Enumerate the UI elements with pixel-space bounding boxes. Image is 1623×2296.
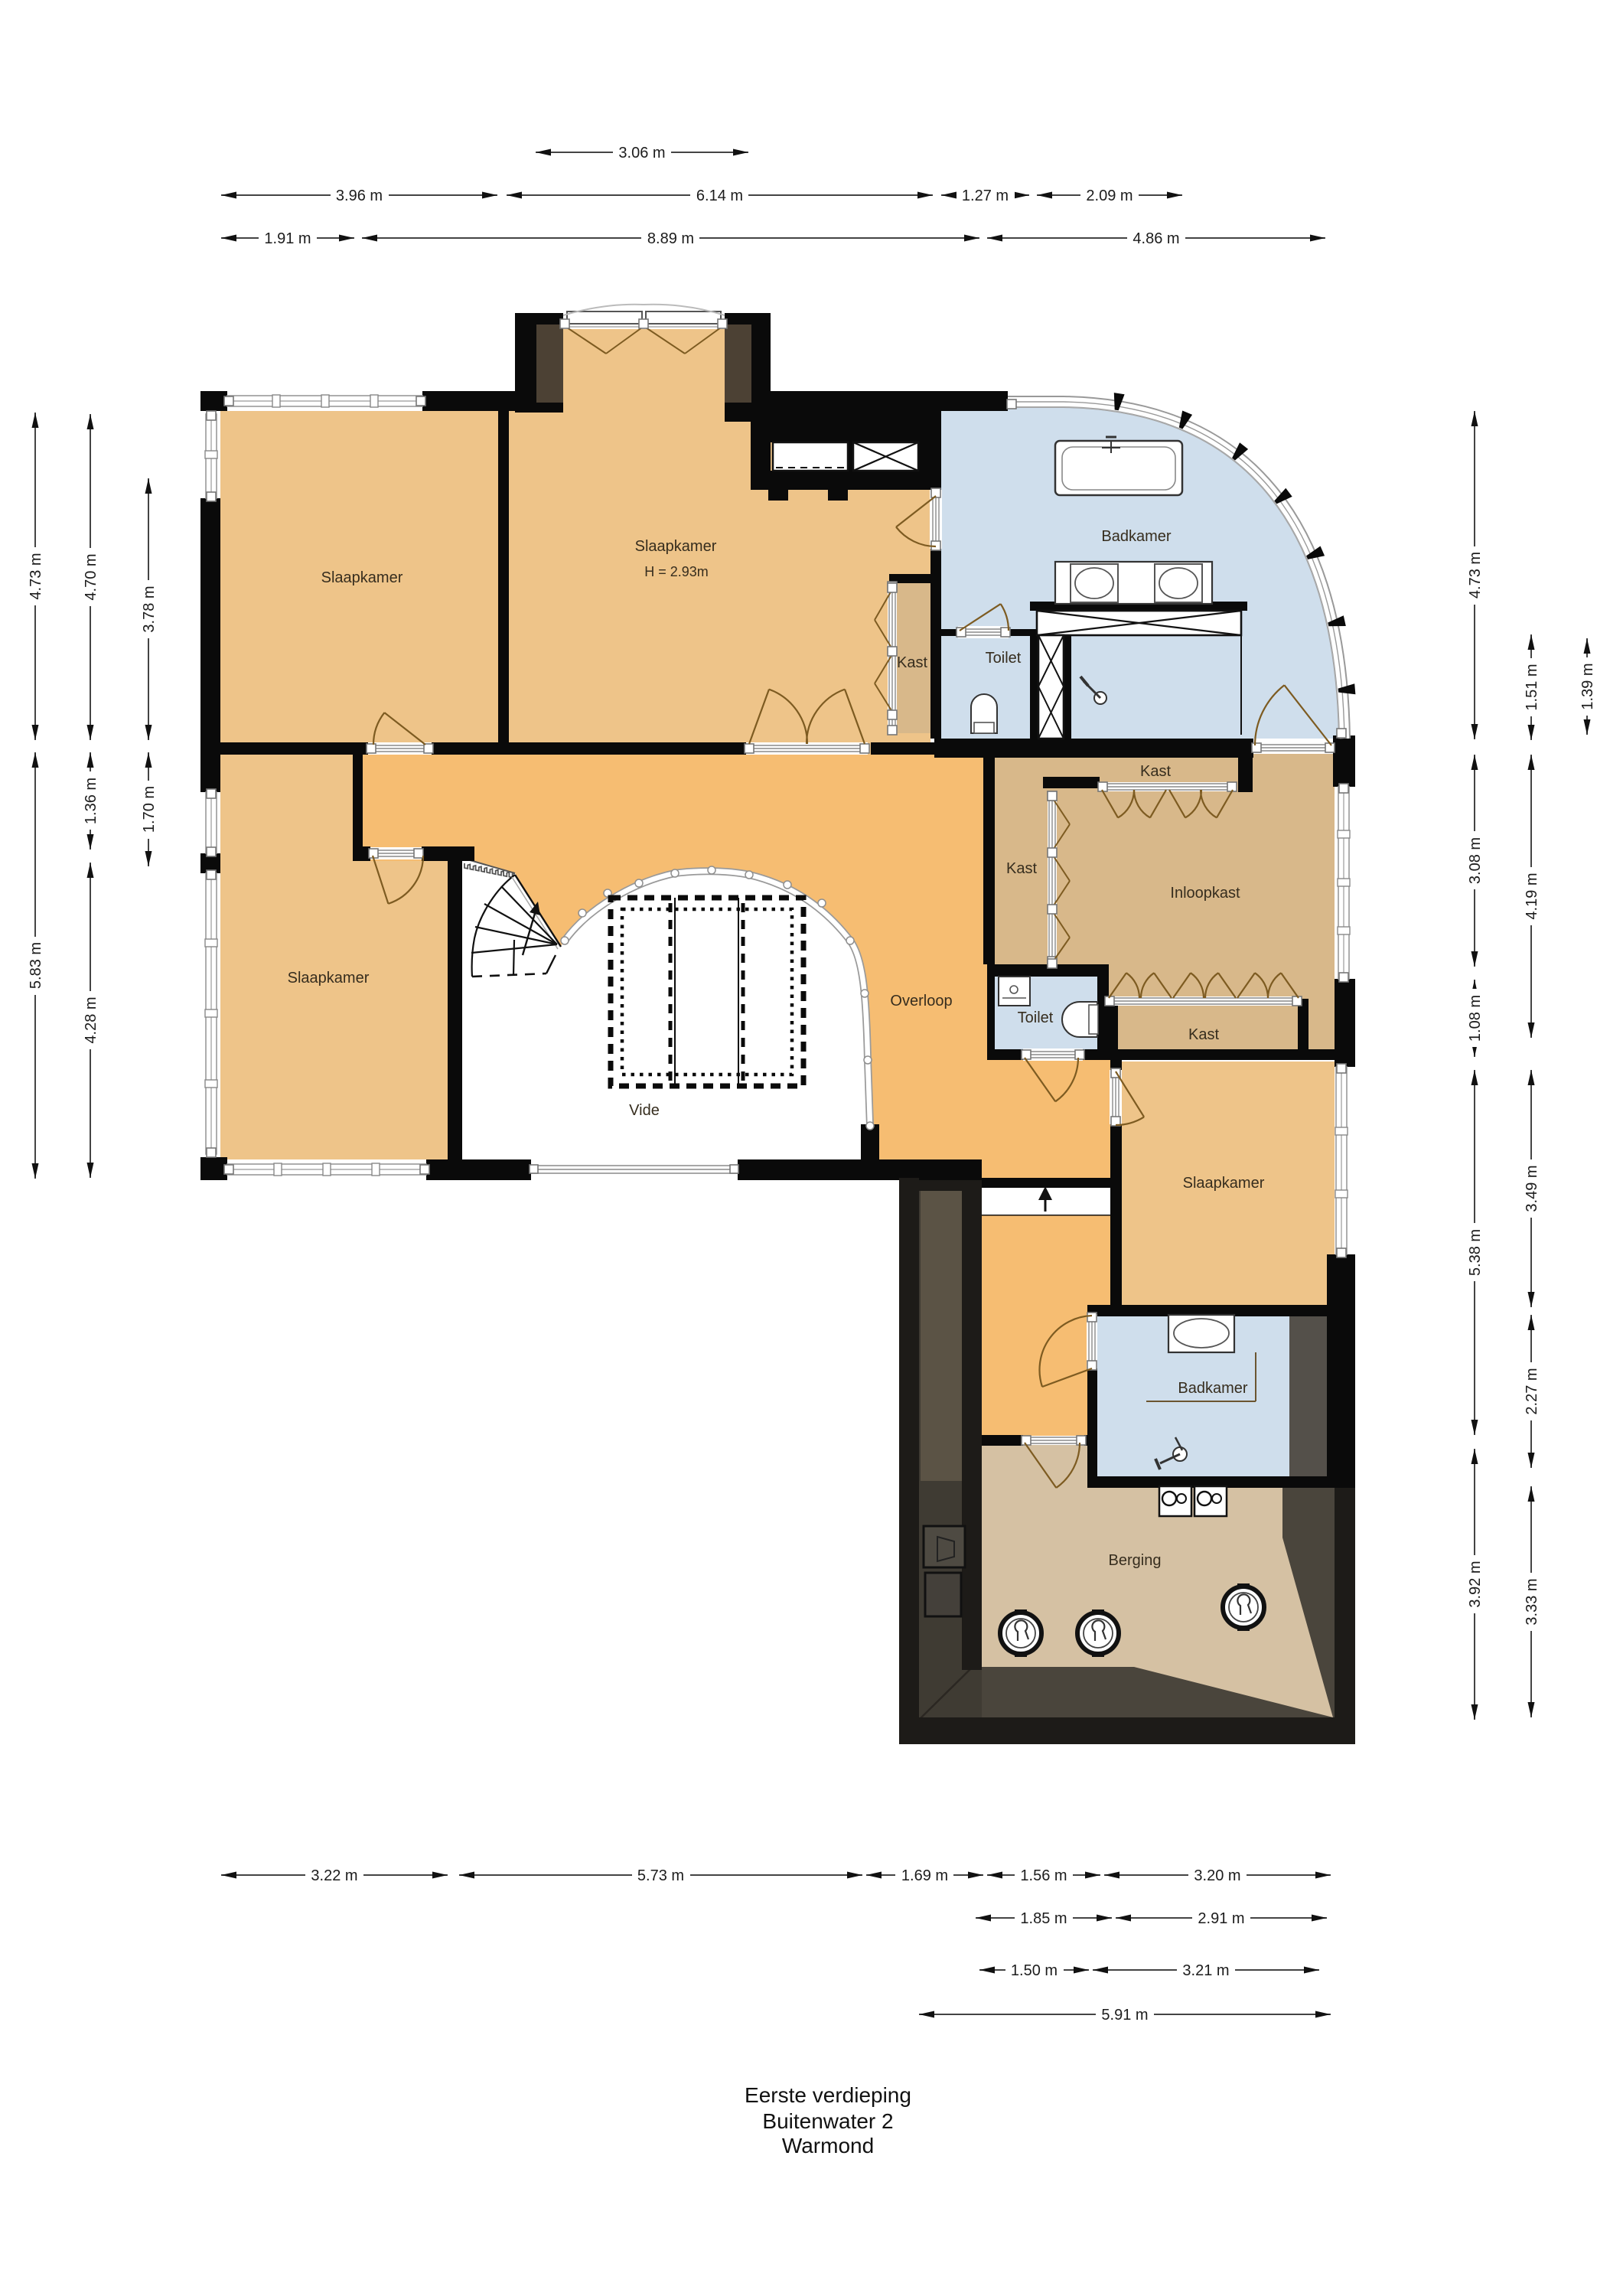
svg-text:4.73 m: 4.73 m [28,553,44,599]
svg-text:3.92 m: 3.92 m [1467,1561,1484,1607]
svg-text:Badkamer: Badkamer [1101,528,1171,545]
svg-text:Kast: Kast [1006,860,1037,877]
svg-text:Warmond: Warmond [782,2134,874,2157]
svg-text:1.39 m: 1.39 m [1579,663,1596,709]
svg-text:1.27 m: 1.27 m [962,188,1009,204]
svg-text:Berging: Berging [1109,1552,1162,1569]
svg-text:6.14 m: 6.14 m [696,188,743,204]
svg-text:1.51 m: 1.51 m [1524,664,1540,710]
svg-text:1.70 m: 1.70 m [141,786,158,833]
svg-text:Slaapkamer: Slaapkamer [635,538,717,555]
svg-text:3.33 m: 3.33 m [1524,1578,1540,1625]
svg-text:Kast: Kast [897,654,927,671]
svg-text:1.36 m: 1.36 m [83,778,99,824]
svg-text:1.69 m: 1.69 m [901,1867,948,1884]
svg-text:4.28 m: 4.28 m [83,996,99,1043]
svg-text:Slaapkamer: Slaapkamer [1183,1175,1265,1192]
svg-text:1.91 m: 1.91 m [264,230,311,247]
svg-text:Buitenwater 2: Buitenwater 2 [762,2109,893,2133]
svg-text:Badkamer: Badkamer [1178,1380,1247,1397]
svg-text:Toilet: Toilet [986,650,1022,667]
svg-text:5.73 m: 5.73 m [637,1867,684,1884]
svg-text:2.09 m: 2.09 m [1086,188,1133,204]
svg-text:Kast: Kast [1188,1026,1219,1043]
svg-text:8.89 m: 8.89 m [647,230,694,247]
svg-text:Slaapkamer: Slaapkamer [288,970,370,987]
svg-text:5.38 m: 5.38 m [1467,1229,1484,1276]
svg-text:1.56 m: 1.56 m [1020,1867,1067,1884]
svg-text:Kast: Kast [1140,763,1171,780]
svg-text:2.91 m: 2.91 m [1198,1910,1244,1927]
svg-text:4.86 m: 4.86 m [1133,230,1179,247]
svg-text:4.73 m: 4.73 m [1467,552,1484,598]
svg-text:Inloopkast: Inloopkast [1170,885,1240,902]
svg-text:1.85 m: 1.85 m [1020,1910,1067,1927]
svg-text:3.78 m: 3.78 m [141,585,158,632]
svg-text:1.50 m: 1.50 m [1011,1962,1058,1979]
svg-text:3.21 m: 3.21 m [1182,1962,1229,1979]
svg-text:3.96 m: 3.96 m [336,188,383,204]
svg-text:Slaapkamer: Slaapkamer [321,569,403,586]
svg-text:1.08 m: 1.08 m [1467,995,1484,1042]
svg-text:3.08 m: 3.08 m [1467,837,1484,884]
svg-text:3.20 m: 3.20 m [1194,1867,1240,1884]
svg-text:Vide: Vide [629,1102,660,1119]
svg-text:5.91 m: 5.91 m [1101,2007,1148,2024]
svg-text:3.06 m: 3.06 m [618,145,665,161]
svg-text:Toilet: Toilet [1018,1009,1054,1026]
svg-text:5.83 m: 5.83 m [28,942,44,989]
svg-text:2.27 m: 2.27 m [1524,1368,1540,1414]
svg-text:3.22 m: 3.22 m [311,1867,357,1884]
svg-text:3.49 m: 3.49 m [1524,1165,1540,1212]
svg-text:4.70 m: 4.70 m [83,553,99,600]
svg-text:4.19 m: 4.19 m [1524,872,1540,919]
svg-text:Eerste verdieping: Eerste verdieping [745,2083,911,2107]
svg-text:H = 2.93m: H = 2.93m [644,564,709,579]
svg-text:Overloop: Overloop [890,993,952,1009]
